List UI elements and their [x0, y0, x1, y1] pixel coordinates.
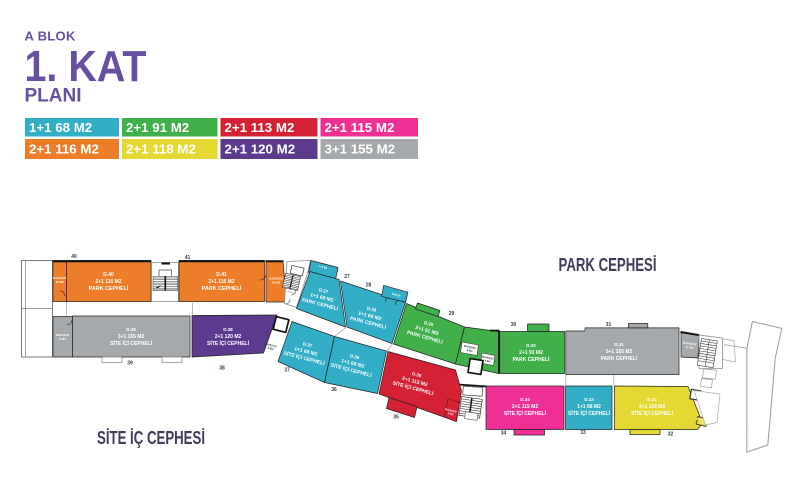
svg-text:30: 30: [511, 322, 517, 328]
svg-text:41: 41: [185, 255, 191, 261]
svg-text:PARK CEPHELİ: PARK CEPHELİ: [202, 285, 242, 292]
svg-text:SİTE İÇ CEPHESİ: SİTE İÇ CEPHESİ: [97, 428, 205, 448]
svg-text:D.33: D.33: [584, 397, 594, 402]
svg-text:3+1 155 M2: 3+1 155 M2: [118, 334, 145, 340]
svg-text:40: 40: [71, 254, 77, 260]
svg-text:8 M2: 8 M2: [59, 337, 66, 341]
svg-text:2+1 113 M2: 2+1 113 M2: [225, 120, 295, 135]
svg-text:37: 37: [284, 368, 290, 374]
svg-text:D.41: D.41: [216, 272, 227, 278]
svg-text:27: 27: [344, 274, 350, 280]
svg-text:2+1 116 M2: 2+1 116 M2: [29, 141, 99, 156]
svg-text:PLANI: PLANI: [25, 86, 82, 107]
svg-text:SİTE İÇİ CEPHELİ: SİTE İÇİ CEPHELİ: [207, 340, 250, 347]
svg-text:SİTE İÇİ CEPHELİ: SİTE İÇİ CEPHELİ: [110, 340, 153, 347]
svg-text:34: 34: [501, 431, 507, 437]
svg-text:SİTE İÇİ CEPHELİ: SİTE İÇİ CEPHELİ: [504, 410, 547, 417]
svg-text:2+1 118 M2: 2+1 118 M2: [126, 141, 196, 156]
svg-text:D.30: D.30: [526, 343, 536, 348]
svg-text:29: 29: [449, 311, 455, 317]
svg-text:PARK CEPHESİ: PARK CEPHESİ: [559, 255, 657, 275]
svg-text:28: 28: [366, 283, 372, 289]
svg-text:D.40: D.40: [103, 272, 114, 278]
svg-text:3+1 155 M2: 3+1 155 M2: [325, 141, 396, 156]
svg-text:35: 35: [393, 415, 399, 421]
svg-text:PARK CEPHELİ: PARK CEPHELİ: [513, 356, 550, 363]
svg-text:2+1 116 M2: 2+1 116 M2: [95, 279, 121, 285]
svg-text:D.32: D.32: [647, 397, 657, 402]
svg-text:31: 31: [606, 322, 612, 328]
svg-text:38: 38: [219, 366, 225, 372]
svg-text:SİTE İÇİ CEPHELİ: SİTE İÇİ CEPHELİ: [568, 410, 611, 417]
svg-text:1. KAT: 1. KAT: [25, 42, 147, 91]
svg-text:2+1 115 M2: 2+1 115 M2: [512, 404, 538, 410]
svg-text:39: 39: [127, 361, 133, 367]
svg-text:2+1 116 M2: 2+1 116 M2: [208, 279, 234, 285]
svg-text:16 M2: 16 M2: [56, 280, 65, 284]
svg-text:D.31: D.31: [614, 342, 624, 347]
svg-text:3+1 155 M2: 3+1 155 M2: [606, 349, 633, 355]
svg-text:2+1 115 M2: 2+1 115 M2: [325, 120, 395, 135]
svg-text:PARK CEPHELİ: PARK CEPHELİ: [89, 285, 129, 292]
svg-text:D.34: D.34: [520, 397, 530, 402]
svg-text:2+1 120 M2: 2+1 120 M2: [215, 334, 242, 340]
svg-text:D.38: D.38: [223, 327, 233, 332]
svg-text:18 M2: 18 M2: [272, 281, 281, 285]
svg-text:SİTE İÇİ CEPHELİ: SİTE İÇİ CEPHELİ: [631, 410, 674, 417]
svg-text:32: 32: [668, 432, 674, 438]
svg-text:1+1 68 M2: 1+1 68 M2: [577, 404, 601, 410]
svg-text:D.39: D.39: [126, 327, 136, 332]
svg-text:36: 36: [331, 387, 337, 393]
svg-text:2+1 91 M2: 2+1 91 M2: [126, 120, 189, 135]
svg-text:PARK CEPHELİ: PARK CEPHELİ: [601, 355, 638, 362]
svg-text:2+1 118 M2: 2+1 118 M2: [639, 404, 665, 410]
svg-text:2+1 91 M2: 2+1 91 M2: [519, 350, 543, 356]
svg-text:2+1 120 M2: 2+1 120 M2: [225, 141, 296, 156]
svg-text:1+1 68 M2: 1+1 68 M2: [29, 120, 92, 135]
svg-text:33: 33: [580, 430, 586, 436]
